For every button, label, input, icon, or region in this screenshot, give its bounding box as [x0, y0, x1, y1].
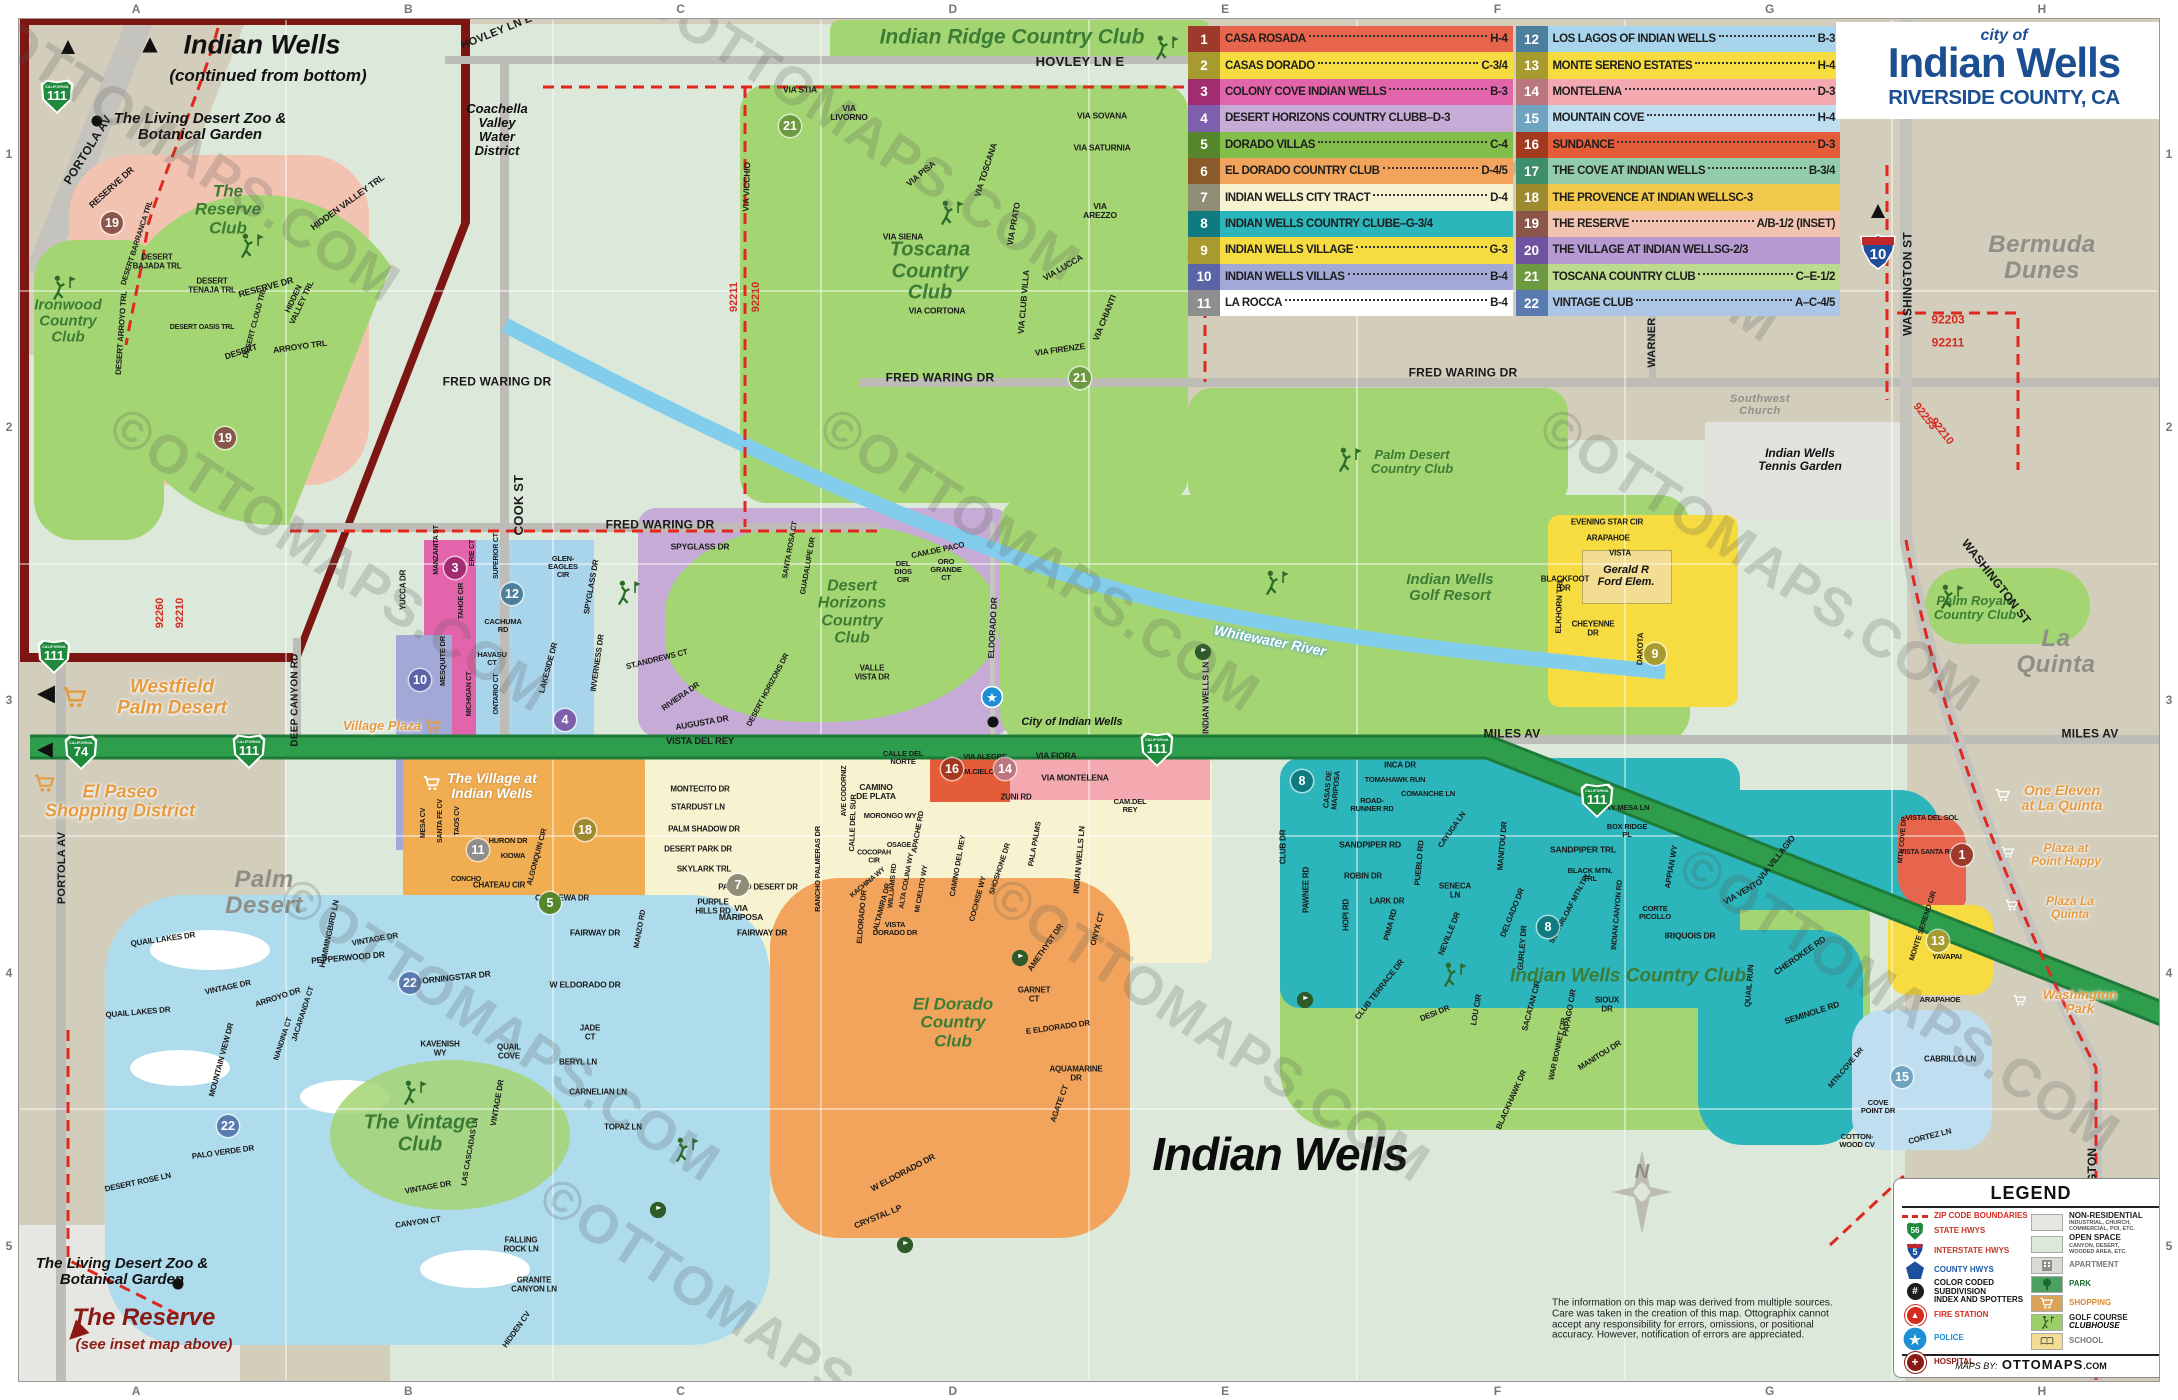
index-row-leader [1373, 194, 1487, 196]
index-row: 13MONTE SERENO ESTATESH-4 [1516, 52, 1841, 78]
index-row-gridref: D-3 [1818, 86, 1835, 98]
cart-icon [2005, 899, 2019, 911]
index-row-gridref: H-4 [1490, 33, 1507, 45]
index-row-text: INDIAN WELLS VILLAGEG-3 [1220, 237, 1513, 263]
grid-letter-F: F [1361, 1382, 1633, 1400]
index-row-leader [1636, 299, 1792, 301]
index-row-leader [1708, 167, 1806, 169]
legend-item-text: APARTMENT [2069, 1261, 2119, 1269]
ca-hwy-shield-111: CALIFORNIA111 [232, 733, 266, 769]
index-row-number: 4 [1188, 105, 1220, 131]
index-row-leader [1719, 35, 1815, 37]
legend-item: PARK [2031, 1276, 2160, 1293]
legend-item-text: GOLF COURSECLUBHOUSE [2069, 1314, 2128, 1331]
ca-hwy-shield-74: CALIFORNIA74 [64, 734, 98, 770]
grid-letter-E: E [1089, 0, 1361, 18]
map-label: Plaza La Quinta [2046, 895, 2094, 921]
legend-item: SHOPPING [2031, 1295, 2160, 1312]
index-row-leader [1309, 35, 1487, 37]
legend-item: COUNTY HWYS [1902, 1261, 2031, 1279]
index-row: 21TOSCANA COUNTRY CLUBC–E-1/2 [1516, 264, 1841, 290]
index-row-leader [1318, 62, 1479, 64]
legend-item: NON-RESIDENTIALINDUSTRIAL, CHURCH, COMME… [2031, 1212, 2160, 1232]
legend-item-text: NON-RESIDENTIALINDUSTRIAL, CHURCH, COMME… [2069, 1212, 2143, 1232]
index-row-gridref: B-4 [1490, 297, 1507, 309]
index-row-leader [1647, 114, 1814, 116]
grid-number-4: 4 [0, 836, 18, 1109]
spotter-21: 21 [779, 115, 801, 137]
grid-number-3: 3 [2160, 564, 2178, 837]
index-row-gridref: H-4 [1818, 60, 1835, 72]
index-row-gridref: A–C-4/5 [1795, 297, 1835, 309]
spotter-12: 12 [501, 583, 523, 605]
legend-item: SCHOOL [2031, 1333, 2160, 1350]
grid-letter-G: G [1634, 0, 1906, 18]
grid-number-4: 4 [2160, 836, 2178, 1109]
index-row-gridref: A/B-1/2 (INSET) [1757, 218, 1835, 230]
fire-icon: ▲ [1902, 1305, 1928, 1326]
index-row-name: DORADO VILLAS [1225, 139, 1315, 151]
index-row-number: 13 [1516, 52, 1548, 78]
spotter-5: 5 [539, 892, 561, 914]
title-county: RIVERSIDE COUNTY, CA [1836, 88, 2172, 109]
index-row-name: DESERT HORIZONS COUNTRY CLUB [1225, 112, 1419, 124]
index-row-number: 1 [1188, 26, 1220, 52]
legend: LEGEND ZIP CODE BOUNDARIES56STATE HWYS5I… [1893, 1178, 2169, 1378]
index-row-number: 14 [1516, 79, 1548, 105]
index-row-text: MONTE SERENO ESTATESH-4 [1548, 52, 1841, 78]
ca-hwy-shield-111: CALIFORNIA111 [1140, 731, 1174, 767]
spotter-16: 16 [941, 758, 963, 780]
cart-icon [2013, 994, 2027, 1006]
index-row-name: CASAS DORADO [1225, 60, 1315, 72]
school-icon [2031, 1333, 2063, 1350]
grid-number-2: 2 [2160, 291, 2178, 564]
index-row-number: 6 [1188, 158, 1220, 184]
index-row-gridref: G-2/3 [1721, 244, 1748, 256]
spotter-3: 3 [444, 557, 466, 579]
region-iwcc-teal [1280, 758, 1740, 1008]
index-row-number: 2 [1188, 52, 1220, 78]
region-vintage-golf [330, 1060, 570, 1210]
tree-icon [2031, 1276, 2063, 1293]
region-toscana-cc [740, 85, 1188, 503]
region-montelena [1010, 752, 1210, 800]
ca-hwy-shield-111: CALIFORNIA111 [1580, 782, 1614, 818]
legend-footer-pre: MAPS BY: [1955, 1361, 1997, 1371]
region-gerald-ford-school [1582, 550, 1672, 604]
index-row-text: THE RESERVEA/B-1/2 (INSET) [1548, 211, 1841, 237]
index-row-gridref: G-3 [1490, 244, 1508, 256]
legend-item-label: SCHOOL [2069, 1337, 2103, 1345]
golfer-icon [2031, 1314, 2063, 1331]
legend-title: LEGEND [1902, 1183, 2160, 1208]
legend-item: APARTMENT [2031, 1257, 2160, 1274]
spotter-22: 22 [217, 1115, 239, 1137]
interstate-shield-10: 10 [1858, 234, 1898, 270]
apartment-icon [2031, 1257, 2063, 1274]
index-row-number: 10 [1188, 264, 1220, 290]
index-row-gridref: E–G-3/4 [1393, 218, 1433, 230]
index-row-number: 12 [1516, 26, 1548, 52]
region-tennis-garden [1705, 422, 1900, 520]
grid-letter-D: D [817, 1382, 1089, 1400]
road-fred-waring-w [290, 523, 880, 532]
index-row-name: EL DORADO COUNTRY CLUB [1225, 165, 1380, 177]
hospital-icon: + [1902, 1352, 1928, 1373]
index-row-gridref: B-4 [1490, 271, 1507, 283]
grid-letter-C: C [545, 0, 817, 18]
legend-item-text: OPEN SPACECANYON, DESERT, WOODED AREA, E… [2069, 1234, 2127, 1254]
police-icon: ★ [1902, 1326, 1928, 1352]
region-mountain-cove [1852, 1010, 1992, 1150]
index-row-number: 3 [1188, 79, 1220, 105]
legend-left-column: ZIP CODE BOUNDARIES56STATE HWYS5INTERSTA… [1902, 1212, 2031, 1350]
index-row-name: LOS LAGOS OF INDIAN WELLS [1553, 33, 1716, 45]
color-swatch [2031, 1214, 2063, 1231]
road-deep-canyon [293, 638, 301, 750]
legend-footer-brand: OTTOMAPS [2002, 1357, 2083, 1372]
index-row: 7INDIAN WELLS CITY TRACTD-4 [1188, 184, 1513, 210]
index-row-number: 17 [1516, 158, 1548, 184]
legend-item-sublabel: INDUSTRIAL, CHURCH, COMMERCIAL, POI, ETC… [2069, 1220, 2143, 1232]
index-row: 17THE COVE AT INDIAN WELLSB-3/4 [1516, 158, 1841, 184]
index-row-name: MOUNTAIN COVE [1553, 112, 1645, 124]
index-row-number: 16 [1516, 132, 1548, 158]
index-row: 3COLONY COVE INDIAN WELLSB-3 [1188, 79, 1513, 105]
index-column-left: 1CASA ROSADAH-42CASAS DORADOC-3/43COLONY… [1188, 26, 1513, 316]
legend-item-label: STATE HWYS [1934, 1227, 1985, 1235]
index-row: 19THE RESERVEA/B-1/2 (INSET) [1516, 211, 1841, 237]
index-row-name: INDIAN WELLS CITY TRACT [1225, 192, 1370, 204]
index-row-text: CASA ROSADAH-4 [1220, 26, 1513, 52]
index-row-leader [1383, 167, 1479, 169]
index-row: 15MOUNTAIN COVEH-4 [1516, 105, 1841, 131]
index-row-text: COLONY COVE INDIAN WELLSB-3 [1220, 79, 1513, 105]
index-row-text: CASAS DORADOC-3/4 [1220, 52, 1513, 78]
index-row-number: 20 [1516, 237, 1548, 263]
grid-letter-D: D [817, 0, 1089, 18]
legend-item-text: SCHOOL [2069, 1337, 2103, 1345]
grid-ruler-left: 12345 [0, 18, 19, 1382]
map-label: 92253 [1910, 401, 1938, 432]
region-vintage-lake1 [150, 930, 270, 970]
legend-item: ZIP CODE BOUNDARIES [1902, 1212, 2031, 1220]
legend-item: GOLF COURSECLUBHOUSE [2031, 1314, 2160, 1331]
map-label: Westfield Palm Desert [117, 677, 227, 718]
map-label: Bermuda Dunes [1988, 232, 2096, 284]
shield-state-icon: 56 [1902, 1220, 1928, 1241]
subdivision-index: 1CASA ROSADAH-42CASAS DORADOC-3/43COLONY… [1188, 26, 1840, 316]
index-row-text: DESERT HORIZONS COUNTRY CLUBB–D-3 [1220, 105, 1513, 131]
cart-icon [34, 774, 56, 792]
index-row-text: INDIAN WELLS CITY TRACTD-4 [1220, 184, 1513, 210]
grid-letter-A: A [0, 0, 272, 18]
index-row-number: 8 [1188, 211, 1220, 237]
spotter-1: 1 [1951, 844, 1973, 866]
legend-body: ZIP CODE BOUNDARIES56STATE HWYS5INTERSTA… [1902, 1212, 2160, 1350]
grid-number-5: 5 [2160, 1109, 2178, 1382]
legend-item-label: ZIP CODE BOUNDARIES [1934, 1212, 2028, 1220]
index-row-leader [1318, 141, 1487, 143]
index-row: 18THE PROVENCE AT INDIAN WELLSC-3 [1516, 184, 1841, 210]
spotter-15: 15 [1891, 1066, 1913, 1088]
index-row: 22VINTAGE CLUBA–C-4/5 [1516, 290, 1841, 316]
index-row-number: 7 [1188, 184, 1220, 210]
legend-item-sublabel: CANYON, DESERT, WOODED AREA, ETC. [2069, 1243, 2127, 1255]
index-row-text: VINTAGE CLUBA–C-4/5 [1548, 290, 1841, 316]
index-row-leader [1348, 273, 1488, 275]
index-row-text: THE PROVENCE AT INDIAN WELLSC-3 [1548, 184, 1841, 210]
index-row-leader [1285, 299, 1487, 301]
index-row: 6EL DORADO COUNTRY CLUBD-4/5 [1188, 158, 1513, 184]
legend-item-label: PARK [2069, 1280, 2091, 1288]
spotter-19: 19 [214, 427, 236, 449]
ca-hwy-shield-111: CALIFORNIA111 [40, 78, 74, 114]
legend-item-text: SHOPPING [2069, 1299, 2111, 1307]
legend-item: 56STATE HWYS [1902, 1220, 2031, 1241]
region-iw-golf-resort-n [1188, 388, 1568, 508]
grid-number-1: 1 [0, 18, 18, 291]
ca-hwy-shield-111: CALIFORNIA111 [37, 638, 71, 674]
road-cook-st [500, 56, 509, 748]
index-row-name: LA ROCCA [1225, 297, 1282, 309]
index-row-text: TOSCANA COUNTRY CLUBC–E-1/2 [1548, 264, 1841, 290]
spotter-19: 19 [101, 212, 123, 234]
spotter-11: 11 [467, 839, 489, 861]
index-row-name: INDIAN WELLS VILLAGE [1225, 244, 1353, 256]
spotter-13: 13 [1927, 930, 1949, 952]
spotter-4: 4 [554, 709, 576, 731]
index-row-number: 5 [1188, 132, 1220, 158]
legend-item: 5INTERSTATE HWYS [1902, 1241, 2031, 1261]
index-row-gridref: B–D-3 [1419, 112, 1450, 124]
map-label: Southwest Church [1730, 394, 1790, 418]
index-row-gridref: D-4 [1490, 192, 1507, 204]
index-row-text: INDIAN WELLS COUNTRY CLUBE–G-3/4 [1220, 211, 1513, 237]
region-vintage-lake2 [130, 1050, 230, 1086]
index-row: 5DORADO VILLASC-4 [1188, 132, 1513, 158]
spotter-8: 8 [1291, 770, 1313, 792]
legend-item: ★POLICE [1902, 1326, 2031, 1352]
region-palm-royale [1925, 568, 2090, 644]
arrow-left-icon: ◄ [32, 734, 58, 765]
index-row-number: 9 [1188, 237, 1220, 263]
index-row-text: EL DORADO COUNTRY CLUBD-4/5 [1220, 158, 1513, 184]
grid-number-5: 5 [0, 1109, 18, 1382]
index-row-name: MONTE SERENO ESTATES [1553, 60, 1693, 72]
map-canvas: Indian Wells(continued from bottom)The L… [0, 0, 2178, 1400]
map-label: Plaza at Point Happy [2031, 842, 2101, 868]
legend-item: OPEN SPACECANYON, DESERT, WOODED AREA, E… [2031, 1234, 2160, 1254]
index-row-leader [1356, 246, 1486, 248]
index-row: 16SUNDANCED-3 [1516, 132, 1841, 158]
index-row-number: 19 [1516, 211, 1548, 237]
index-row-name: THE RESERVE [1553, 218, 1630, 230]
index-row-leader [1695, 62, 1814, 64]
region-el-dorado-cc [770, 878, 1130, 1238]
legend-item-label: APARTMENT [2069, 1261, 2119, 1269]
index-row-name: TOSCANA COUNTRY CLUB [1553, 271, 1696, 283]
legend-right-column: NON-RESIDENTIALINDUSTRIAL, CHURCH, COMME… [2031, 1212, 2160, 1350]
map-label: One Eleven at La Quinta [2022, 783, 2103, 813]
index-row-text: LA ROCCAB-4 [1220, 290, 1513, 316]
index-row: 4DESERT HORIZONS COUNTRY CLUBB–D-3 [1188, 105, 1513, 131]
grid-letter-B: B [272, 1382, 544, 1400]
cart-icon [2001, 846, 2015, 858]
index-row: 8INDIAN WELLS COUNTRY CLUBE–G-3/4 [1188, 211, 1513, 237]
road-miles-av [1440, 735, 2178, 744]
index-row: 9INDIAN WELLS VILLAGEG-3 [1188, 237, 1513, 263]
index-row-text: SUNDANCED-3 [1548, 132, 1841, 158]
region-cove-at-iw [1698, 930, 1863, 1145]
index-row-name: INDIAN WELLS VILLAS [1225, 271, 1345, 283]
shield-interstate-icon: 5 [1902, 1241, 1928, 1261]
inset-ironwood-golf [34, 240, 164, 540]
index-row-gridref: C-3/4 [1481, 60, 1507, 72]
shield-county-icon [1902, 1261, 1928, 1279]
road-fred-waring-e [860, 378, 2178, 387]
legend-footer-suffix: .COM [2083, 1361, 2107, 1371]
road-eldorado-dr [990, 522, 995, 744]
index-row-number: 11 [1188, 290, 1220, 316]
grid-ruler-bottom: ABCDEFGH [0, 1381, 2178, 1400]
cart-icon [1995, 788, 2011, 801]
map-label: 92203 [1931, 314, 1964, 327]
index-row: 2CASAS DORADOC-3/4 [1188, 52, 1513, 78]
index-row-gridref: D-4/5 [1481, 165, 1507, 177]
road-hovley-ln [445, 56, 1190, 64]
index-row-name: MONTELENA [1553, 86, 1622, 98]
index-row: 1CASA ROSADAH-4 [1188, 26, 1513, 52]
index-row-name: VINTAGE CLUB [1553, 297, 1634, 309]
grid-number-2: 2 [0, 291, 18, 564]
index-row-gridref: B-3/4 [1809, 165, 1835, 177]
index-row-text: LOS LAGOS OF INDIAN WELLSB-3 [1548, 26, 1841, 52]
index-row: 11LA ROCCAB-4 [1188, 290, 1513, 316]
index-row-name: THE COVE AT INDIAN WELLS [1553, 165, 1706, 177]
grid-letter-H: H [1906, 0, 2178, 18]
spotter-18: 18 [574, 819, 596, 841]
grid-letter-B: B [272, 0, 544, 18]
index-row-gridref: C–E-1/2 [1796, 271, 1835, 283]
arrow-up-icon: ▲ [1866, 197, 1890, 225]
map-label: El Paseo Shopping District [45, 783, 195, 822]
index-row-name: COLONY COVE INDIAN WELLS [1225, 86, 1386, 98]
index-row-gridref: H-4 [1818, 112, 1835, 124]
index-column-right: 12LOS LAGOS OF INDIAN WELLSB-313MONTE SE… [1516, 26, 1841, 316]
grid-letter-E: E [1089, 1382, 1361, 1400]
map-label: 92210 [1927, 416, 1955, 447]
index-row-name: SUNDANCE [1553, 139, 1615, 151]
color-swatch [2031, 1236, 2063, 1253]
legend-item-label: COLOR CODED SUBDIVISION INDEX AND SPOTTE… [1934, 1279, 2031, 1304]
index-row-text: MOUNTAIN COVEH-4 [1548, 105, 1841, 131]
index-row-number: 21 [1516, 264, 1548, 290]
title-block: city of Indian Wells RIVERSIDE COUNTY, C… [1836, 22, 2172, 119]
map-label: ARAPAHOE [1920, 996, 1961, 1004]
grid-letter-H: H [1906, 1382, 2178, 1400]
index-row-gridref: C-4 [1490, 139, 1507, 151]
index-row-number: 22 [1516, 290, 1548, 316]
grid-number-1: 1 [2160, 18, 2178, 291]
spotter-9: 9 [1644, 643, 1666, 665]
index-row-number: 18 [1516, 184, 1548, 210]
index-row: 10INDIAN WELLS VILLASB-4 [1188, 264, 1513, 290]
legend-item-label: INTERSTATE HWYS [1934, 1247, 2009, 1255]
spotter-21: 21 [1069, 367, 1091, 389]
index-row: 20THE VILLAGE AT INDIAN WELLSG-2/3 [1516, 237, 1841, 263]
legend-item-label: NON-RESIDENTIAL [2069, 1212, 2143, 1220]
grid-ruler-right: 12345 [2159, 18, 2178, 1382]
region-vintage-lake4 [420, 1250, 530, 1288]
index-row-leader [1632, 220, 1754, 222]
index-row-leader [1625, 88, 1815, 90]
index-row-gridref: B-3 [1490, 86, 1507, 98]
grid-letter-A: A [0, 1382, 272, 1400]
spotter-10: 10 [409, 669, 431, 691]
legend-item-label: COUNTY HWYS [1934, 1266, 1994, 1274]
legend-item: #COLOR CODED SUBDIVISION INDEX AND SPOTT… [1902, 1279, 2031, 1304]
legend-item-label: SHOPPING [2069, 1299, 2111, 1307]
svg-text:★: ★ [1908, 1331, 1922, 1348]
title-city: Indian Wells [1836, 42, 2172, 84]
cart-icon [2031, 1295, 2063, 1312]
road-indian-wells-ln [1203, 648, 1208, 743]
index-row-gridref: D-3 [1818, 139, 1835, 151]
index-row-name: CASA ROSADA [1225, 33, 1306, 45]
grid-letter-C: C [545, 1382, 817, 1400]
index-row-name: THE PROVENCE AT INDIAN WELLS [1553, 192, 1736, 204]
grid-letter-G: G [1634, 1382, 1906, 1400]
zip-dash-icon [1902, 1215, 1928, 1218]
index-row-text: THE VILLAGE AT INDIAN WELLSG-2/3 [1548, 237, 1841, 263]
grid-letter-F: F [1361, 0, 1633, 18]
spotter-22: 22 [399, 972, 421, 994]
index-row-text: MONTELENAD-3 [1548, 79, 1841, 105]
region-village-provence2 [403, 755, 645, 905]
index-row-text: DORADO VILLASC-4 [1220, 132, 1513, 158]
map-label: Washington Park [2043, 988, 2117, 1016]
spotter-7: 7 [727, 874, 749, 896]
grid-ruler-top: ABCDEFGH [0, 0, 2178, 19]
spotter-14: 14 [994, 758, 1016, 780]
spotter-8: 8 [1537, 916, 1559, 938]
legend-item-label: OPEN SPACE [2069, 1234, 2127, 1242]
index-row-name: THE VILLAGE AT INDIAN WELLS [1553, 244, 1722, 256]
index-row-leader [1389, 88, 1487, 90]
index-row-leader [1698, 273, 1792, 275]
legend-item: ▲FIRE STATION [1902, 1305, 2031, 1326]
index-row-gridref: C-3 [1736, 192, 1753, 204]
index-row-gridref: B-3 [1818, 33, 1835, 45]
index-row-text: THE COVE AT INDIAN WELLSB-3/4 [1548, 158, 1841, 184]
spotter-icon: # [1902, 1283, 1928, 1300]
index-row: 14MONTELENAD-3 [1516, 79, 1841, 105]
index-row: 12LOS LAGOS OF INDIAN WELLSB-3 [1516, 26, 1841, 52]
legend-item-label: POLICE [1934, 1334, 1964, 1342]
legend-item-label: FIRE STATION [1934, 1311, 1988, 1319]
index-row-name: INDIAN WELLS COUNTRY CLUB [1225, 218, 1393, 230]
index-row-leader [1617, 141, 1814, 143]
legend-item-text: PARK [2069, 1280, 2091, 1288]
index-row-number: 15 [1516, 105, 1548, 131]
region-iw-village [1548, 515, 1738, 707]
index-row-text: INDIAN WELLS VILLASB-4 [1220, 264, 1513, 290]
legend-item-sublabel: CLUBHOUSE [2069, 1322, 2128, 1330]
map-label: 92211 [1932, 337, 1965, 350]
grid-number-3: 3 [0, 564, 18, 837]
